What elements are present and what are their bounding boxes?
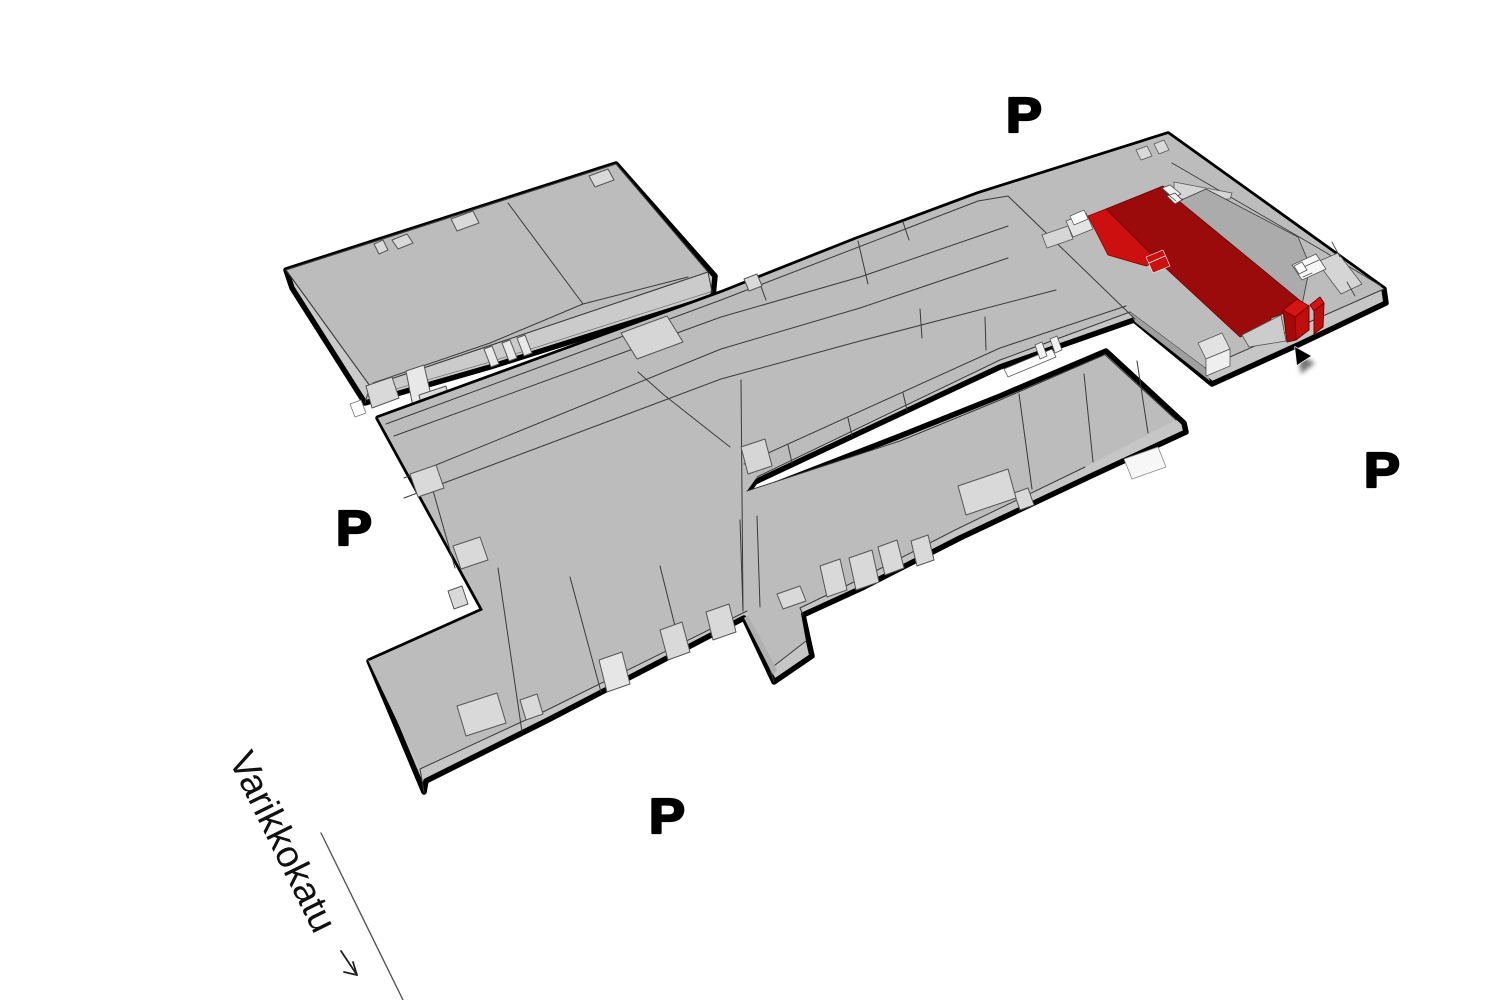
svg-text:P: P <box>1006 87 1042 142</box>
svg-text:P: P <box>649 788 685 843</box>
svg-text:P: P <box>336 500 372 555</box>
svg-text:P: P <box>1364 442 1400 497</box>
